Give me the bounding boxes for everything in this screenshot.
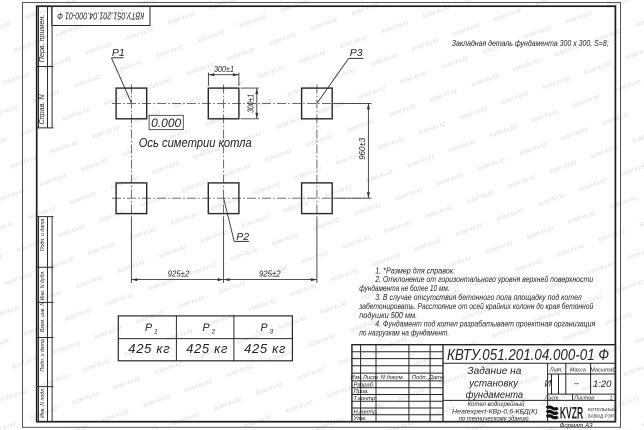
- svg-text:установку: установку: [468, 378, 519, 389]
- svg-text:Взам. инв. N: Взам. инв. N: [40, 302, 46, 332]
- svg-text:925±2: 925±2: [168, 270, 190, 279]
- svg-text:Инв. N подл.: Инв. N подл.: [40, 388, 46, 418]
- svg-text:Лист: Лист: [544, 395, 559, 401]
- svg-text:Подп.: Подп.: [412, 375, 427, 381]
- svg-text:Изм.Лист: Изм.Лист: [351, 375, 378, 381]
- svg-text:Закладная деталь фундамента 3: Закладная деталь фундамента 300 x 300, S…: [452, 39, 609, 48]
- svg-text:425 кг: 425 кг: [128, 341, 170, 356]
- svg-text:1. *Размер для справок.: 1. *Размер для справок.: [375, 266, 455, 275]
- svg-text:Р3: Р3: [350, 47, 363, 59]
- svg-text:Ось симетрии котла: Ось симетрии котла: [139, 135, 252, 150]
- svg-text:Справ. N: Справ. N: [37, 94, 46, 125]
- svg-text:КОТЕЛЬНЫЙ: КОТЕЛЬНЫЙ: [588, 405, 617, 412]
- svg-text:забетонировать. Расстояние от: забетонировать. Расстояние от осей крайн…: [358, 302, 593, 311]
- svg-text:Т.контр.: Т.контр.: [354, 396, 377, 402]
- svg-text:ЗАВОД РЭП: ЗАВОД РЭП: [588, 414, 614, 419]
- svg-text:Утв.: Утв.: [353, 416, 367, 422]
- svg-text:Heatexpert-КВр-0,6-КБД(К): Heatexpert-КВр-0,6-КБД(К): [452, 409, 538, 416]
- svg-text:4. Фундамент под котел разраба: 4. Фундамент под котел разрабатывает про…: [375, 320, 596, 329]
- svg-text:Листов: Листов: [573, 395, 594, 401]
- svg-text:N докум.: N докум.: [381, 375, 404, 381]
- svg-text:фундамента не более 10 мм.: фундамента не более 10 мм.: [359, 284, 450, 293]
- svg-text:1: 1: [610, 395, 613, 401]
- svg-text:Подп. и дата: Подп. и дата: [40, 339, 46, 372]
- svg-text:подушки 500 мм.: подушки 500 мм.: [359, 311, 417, 320]
- svg-text:Подп. и дата: Подп. и дата: [40, 219, 46, 252]
- svg-text:925±2: 925±2: [259, 270, 281, 279]
- svg-text:–: –: [573, 378, 580, 388]
- svg-text:2. Отклонение от горизонтально: 2. Отклонение от горизонтального уровня …: [374, 275, 593, 284]
- svg-text:425 кг: 425 кг: [186, 341, 228, 356]
- svg-text:3: 3: [270, 328, 274, 335]
- svg-text:2: 2: [211, 328, 216, 335]
- svg-text:Перв. примен.: Перв. примен.: [37, 15, 46, 63]
- svg-text:И: И: [544, 379, 551, 390]
- svg-text:Р: Р: [145, 322, 152, 334]
- svg-text:КВТУ.051.201.04.000-01 Ф: КВТУ.051.201.04.000-01 Ф: [57, 10, 144, 21]
- svg-text:960±3: 960±3: [358, 137, 367, 160]
- svg-text:Р1: Р1: [112, 47, 125, 59]
- svg-text:Задание на: Задание на: [467, 366, 521, 377]
- svg-text:KVZR: KVZR: [560, 403, 583, 422]
- svg-text:Разраб.: Разраб.: [354, 382, 375, 388]
- svg-text:по техническому зданию: по техническому зданию: [459, 415, 529, 423]
- svg-text:Пров.: Пров.: [354, 389, 369, 395]
- svg-text:425 кг: 425 кг: [244, 341, 286, 356]
- svg-text:Лит.: Лит.: [549, 367, 563, 373]
- svg-text:Масштаб: Масштаб: [590, 367, 616, 373]
- svg-text:фундамента: фундамента: [466, 389, 524, 401]
- svg-text:Котел водогрейный: Котел водогрейный: [468, 400, 525, 408]
- svg-text:КВТУ.051.201.04.000-01 Ф: КВТУ.051.201.04.000-01 Ф: [447, 347, 609, 364]
- svg-text:Дата: Дата: [428, 375, 445, 381]
- svg-text:Н.контр.: Н.контр.: [354, 410, 379, 416]
- svg-text:Масса: Масса: [570, 367, 586, 373]
- svg-text:Инв. N дубл.: Инв. N дубл.: [40, 270, 46, 300]
- svg-text:Р: Р: [261, 322, 268, 334]
- svg-text:по нагрузкам на фундамент.: по нагрузкам на фундамент.: [359, 329, 449, 338]
- svg-text:Формат А3: Формат А3: [560, 423, 593, 429]
- svg-text:300±1: 300±1: [214, 65, 234, 74]
- svg-text:1: 1: [154, 328, 158, 335]
- svg-text:Р: Р: [203, 322, 210, 334]
- svg-text:1:20: 1:20: [593, 379, 612, 390]
- svg-text:0.000: 0.000: [151, 116, 181, 130]
- svg-text:300±1: 300±1: [246, 94, 255, 113]
- svg-text:3. В случае отсутствия бетонно: 3. В случае отсутствия бетонного пола пл…: [375, 293, 582, 302]
